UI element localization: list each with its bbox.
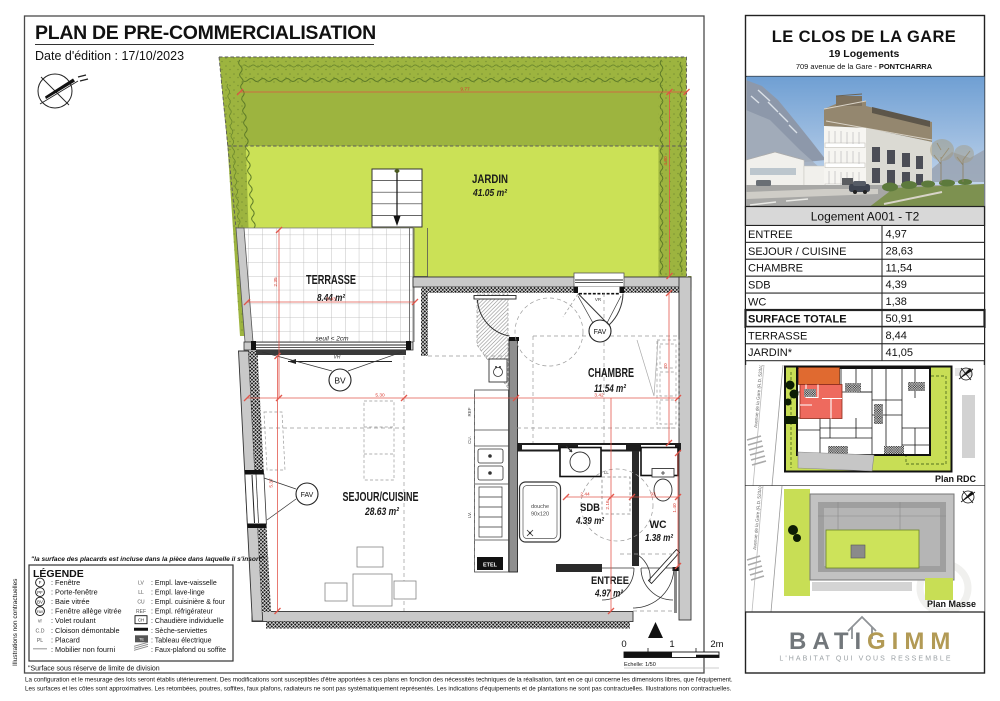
svg-text:douche: douche <box>531 504 549 510</box>
svg-text:1: 1 <box>669 639 674 650</box>
svg-text:90x120: 90x120 <box>531 512 549 518</box>
svg-text:5.30: 5.30 <box>375 393 385 399</box>
svg-text:TE: TE <box>139 637 144 642</box>
svg-text:F: F <box>39 580 42 585</box>
svg-text:REF: REF <box>136 609 146 615</box>
svg-text:: Sèche-serviettes: : Sèche-serviettes <box>151 628 208 635</box>
svg-text:seuil < 2cm: seuil < 2cm <box>315 336 349 343</box>
svg-text:9.77: 9.77 <box>460 87 470 93</box>
svg-text:709 avenue de la Gare - PONTCH: 709 avenue de la Gare - PONTCHARRA <box>796 62 933 71</box>
svg-text:4,97: 4,97 <box>886 229 907 241</box>
svg-text:: Empl. lave-linge: : Empl. lave-linge <box>151 590 205 597</box>
svg-text:: Empl. cuisinière & four: : Empl. cuisinière & four <box>151 599 226 606</box>
svg-text:28.63 m²: 28.63 m² <box>364 506 399 518</box>
svg-text:GIMM: GIMM <box>867 628 956 655</box>
svg-text:28,63: 28,63 <box>886 245 914 257</box>
svg-text:: Fenêtre allège vitrée: : Fenêtre allège vitrée <box>51 607 122 616</box>
svg-text:Logement A001 - T2: Logement A001 - T2 <box>811 210 920 224</box>
svg-text:: Empl. réfrigérateur: : Empl. réfrigérateur <box>151 609 214 616</box>
svg-text:LV: LV <box>138 581 144 587</box>
svg-text:: Tableau électrique: : Tableau électrique <box>151 637 212 644</box>
svg-text:SURFACE TOTALE: SURFACE TOTALE <box>748 313 847 325</box>
svg-text:JARDIN*: JARDIN* <box>748 347 793 359</box>
svg-text:"la surface des placards est: "la surface des placards est incluse dan… <box>31 556 265 563</box>
svg-text:2.44: 2.44 <box>580 492 590 498</box>
svg-text:41.05 m²: 41.05 m² <box>472 187 507 199</box>
svg-text:SDB: SDB <box>580 502 600 514</box>
svg-text:ENTREE: ENTREE <box>591 575 629 587</box>
svg-text:ENTREE: ENTREE <box>748 229 793 241</box>
svg-text:PL: PL <box>37 638 43 644</box>
svg-text:JARDIN: JARDIN <box>472 174 508 186</box>
svg-text:vr: vr <box>38 619 43 625</box>
svg-text:1,38: 1,38 <box>886 296 907 308</box>
svg-text:: Faux-plafond ou soffite: : Faux-plafond ou soffite <box>151 647 226 654</box>
svg-text:TERRASSE: TERRASSE <box>306 273 356 287</box>
svg-text:VR: VR <box>334 355 341 361</box>
svg-text:3.42: 3.42 <box>594 393 604 399</box>
svg-text:: Placard: : Placard <box>51 635 80 644</box>
svg-text:"Surface sous réserve de limit: "Surface sous réserve de limite de divis… <box>28 666 160 673</box>
svg-text:2.35: 2.35 <box>273 277 279 287</box>
svg-text:Date d'édition : 17/10/2023: Date d'édition : 17/10/2023 <box>35 49 184 63</box>
svg-text:PLAN DE PRE-COMMERCIALISATION: PLAN DE PRE-COMMERCIALISATION <box>35 22 376 44</box>
svg-text:L'HABITAT QUI VOUS RESSEMBLE: L'HABITAT QUI VOUS RESSEMBLE <box>779 656 952 663</box>
svg-text:LL: LL <box>604 470 609 475</box>
svg-text:CHAMBRE: CHAMBRE <box>748 263 803 275</box>
svg-text:FAV: FAV <box>37 610 44 614</box>
svg-text:20: 20 <box>663 363 669 369</box>
svg-text:LE CLOS DE LA GARE: LE CLOS DE LA GARE <box>772 28 956 46</box>
svg-text:0: 0 <box>621 639 626 650</box>
svg-text:SEJOUR / CUISINE: SEJOUR / CUISINE <box>748 246 846 258</box>
svg-text:Plan Masse: Plan Masse <box>927 599 976 609</box>
svg-text:CHAMBRE: CHAMBRE <box>588 366 634 380</box>
svg-text:Echelle: 1/50: Echelle: 1/50 <box>624 662 656 668</box>
svg-text:VR: VR <box>595 297 602 302</box>
svg-text:: Mobilier non fourni: : Mobilier non fourni <box>51 645 115 654</box>
svg-text:4,39: 4,39 <box>886 279 907 291</box>
svg-text:CU: CU <box>137 600 145 606</box>
svg-text:: Empl. lave-vaisselle: : Empl. lave-vaisselle <box>151 580 217 587</box>
svg-text:Plan RDC: Plan RDC <box>935 474 977 484</box>
svg-text:5.37: 5.37 <box>269 478 275 488</box>
svg-text:11,54: 11,54 <box>886 262 913 274</box>
svg-text:4.97 m²: 4.97 m² <box>594 589 623 600</box>
svg-text:Les surfaces et les côtes sont: Les surfaces et les côtes sont approxima… <box>25 686 732 693</box>
svg-text:TERRASSE: TERRASSE <box>748 330 807 342</box>
svg-text:: Chaudière individuelle: : Chaudière individuelle <box>151 618 224 625</box>
svg-text:41,05: 41,05 <box>886 347 914 359</box>
svg-text:BV: BV <box>37 599 43 604</box>
svg-text:BATI: BATI <box>789 628 867 655</box>
svg-text:Illustrations non contractuell: Illustrations non contractuelles <box>12 578 19 666</box>
svg-text:19 Logements: 19 Logements <box>829 48 900 60</box>
svg-text:SEJOUR/CUISINE: SEJOUR/CUISINE <box>343 489 419 504</box>
svg-text:CH: CH <box>138 618 144 623</box>
svg-text:5.43: 5.43 <box>326 297 336 303</box>
svg-text:CU.: CU. <box>467 436 472 444</box>
svg-text:LL: LL <box>138 590 144 596</box>
svg-text:WC: WC <box>748 297 766 309</box>
svg-text:1.40: 1.40 <box>672 503 678 513</box>
svg-text:: Fenêtre: : Fenêtre <box>51 578 80 587</box>
svg-text:ETEL: ETEL <box>483 563 498 569</box>
svg-text:: Porte-fenêtre: : Porte-fenêtre <box>51 588 98 597</box>
svg-text:93: 93 <box>650 492 656 498</box>
svg-text:LV.: LV. <box>467 512 472 518</box>
svg-text:FAV: FAV <box>594 329 607 336</box>
svg-text:2m: 2m <box>710 639 723 650</box>
svg-text:1.38 m²: 1.38 m² <box>645 533 674 544</box>
svg-text:2.16: 2.16 <box>605 500 611 510</box>
svg-text:BV: BV <box>334 376 346 386</box>
svg-text:La configuration et le mesurag: La configuration et le mesurage des lots… <box>25 677 733 684</box>
svg-text:FAV: FAV <box>301 492 314 499</box>
svg-text:: Cloison démontable: : Cloison démontable <box>51 626 120 635</box>
svg-text:SDB: SDB <box>748 280 771 292</box>
svg-text:WC: WC <box>650 519 667 531</box>
svg-text:4.39 m²: 4.39 m² <box>575 516 604 527</box>
svg-text:REF: REF <box>467 407 472 416</box>
svg-text:C.D: C.D <box>36 628 45 634</box>
svg-text:4.80: 4.80 <box>663 156 669 166</box>
svg-text:: Baie vitrée: : Baie vitrée <box>51 597 90 606</box>
svg-text:: Volet roulant: : Volet roulant <box>51 616 96 625</box>
svg-text:8,44: 8,44 <box>886 330 907 342</box>
svg-text:50,91: 50,91 <box>886 313 914 325</box>
svg-text:PF: PF <box>37 590 43 595</box>
